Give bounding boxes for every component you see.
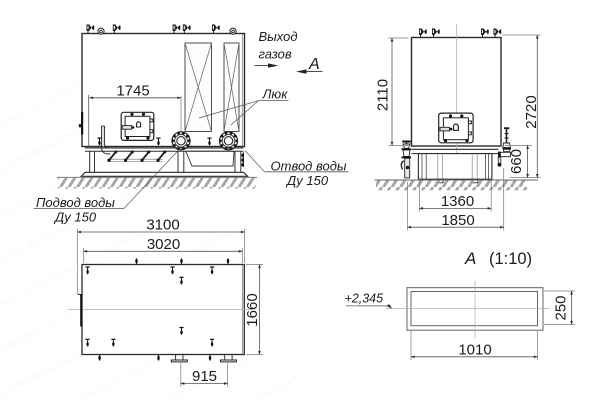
svg-text:2720: 2720 bbox=[523, 95, 540, 128]
svg-text:Подвод воды: Подвод воды bbox=[36, 195, 115, 210]
svg-text:1660: 1660 bbox=[244, 293, 261, 326]
svg-text:Ду 150: Ду 150 bbox=[285, 173, 329, 188]
svg-text:газов: газов bbox=[259, 47, 292, 62]
svg-text:660: 660 bbox=[508, 149, 525, 174]
svg-text:2110: 2110 bbox=[375, 79, 392, 111]
svg-text:+2,345: +2,345 bbox=[345, 292, 384, 306]
svg-text:Люк: Люк bbox=[262, 87, 289, 102]
svg-text:А: А bbox=[464, 249, 476, 268]
svg-text:915: 915 bbox=[192, 368, 217, 385]
svg-text:Выход: Выход bbox=[259, 29, 298, 44]
svg-text:1745: 1745 bbox=[116, 83, 149, 100]
svg-text:Ду 150: Ду 150 bbox=[53, 210, 97, 225]
svg-text:3100: 3100 bbox=[146, 217, 179, 234]
svg-text:Отвод воды: Отвод воды bbox=[271, 159, 347, 174]
svg-text:250: 250 bbox=[553, 295, 570, 320]
svg-text:А: А bbox=[308, 56, 320, 73]
svg-text:1360: 1360 bbox=[441, 193, 474, 210]
svg-text:1010: 1010 bbox=[458, 341, 491, 358]
svg-text:1850: 1850 bbox=[441, 212, 474, 229]
svg-text:(1:10): (1:10) bbox=[489, 250, 532, 268]
svg-text:3020: 3020 bbox=[147, 236, 180, 253]
